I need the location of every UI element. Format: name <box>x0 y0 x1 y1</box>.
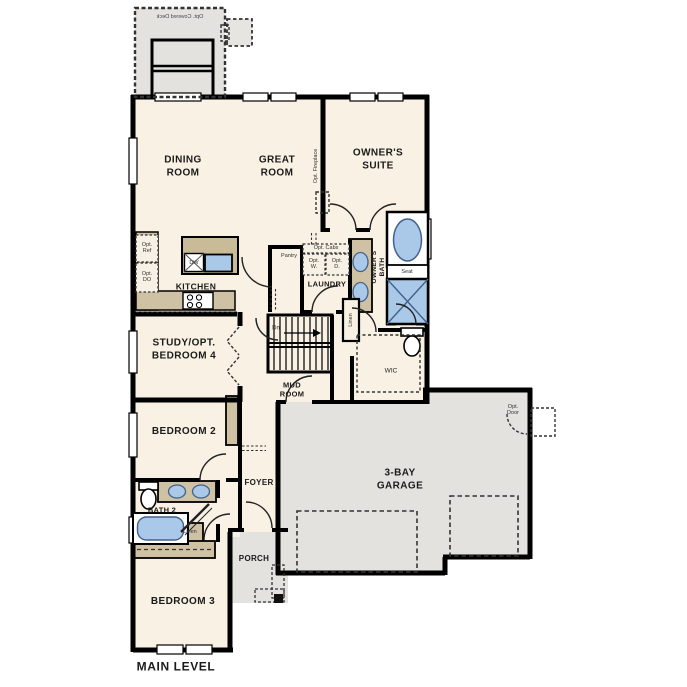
garage-area <box>278 390 530 573</box>
bath2-tub-icon <box>138 517 184 540</box>
floor-upper <box>133 95 427 315</box>
opt-ref-box <box>136 235 158 262</box>
deck-side-pad <box>227 19 252 46</box>
kitchen-sink-icon <box>205 255 232 272</box>
floor-foyer <box>238 402 278 532</box>
bath2-sink-1 <box>169 485 186 498</box>
deck-stairs <box>152 40 213 97</box>
floor-plan-canvas: Opt. Covered Deck DINING ROOM GREAT ROOM… <box>0 0 687 687</box>
owners-sink-1 <box>353 253 368 272</box>
porch-post <box>274 594 283 603</box>
owners-linen-closet <box>343 299 359 341</box>
floor-plan-drawing <box>0 0 687 687</box>
bath2-toilet-icon <box>141 489 156 509</box>
bedroom2-closet <box>226 396 238 445</box>
owners-tub-icon <box>394 219 422 261</box>
bath2-sink-2 <box>193 485 210 498</box>
opt-washer-box <box>303 254 325 275</box>
opt-double-oven-box <box>136 263 158 292</box>
shower-seat <box>387 265 428 279</box>
owners-toilet-icon <box>404 336 420 356</box>
opt-dryer-box <box>326 254 349 275</box>
opt-cabs-box <box>303 244 349 253</box>
